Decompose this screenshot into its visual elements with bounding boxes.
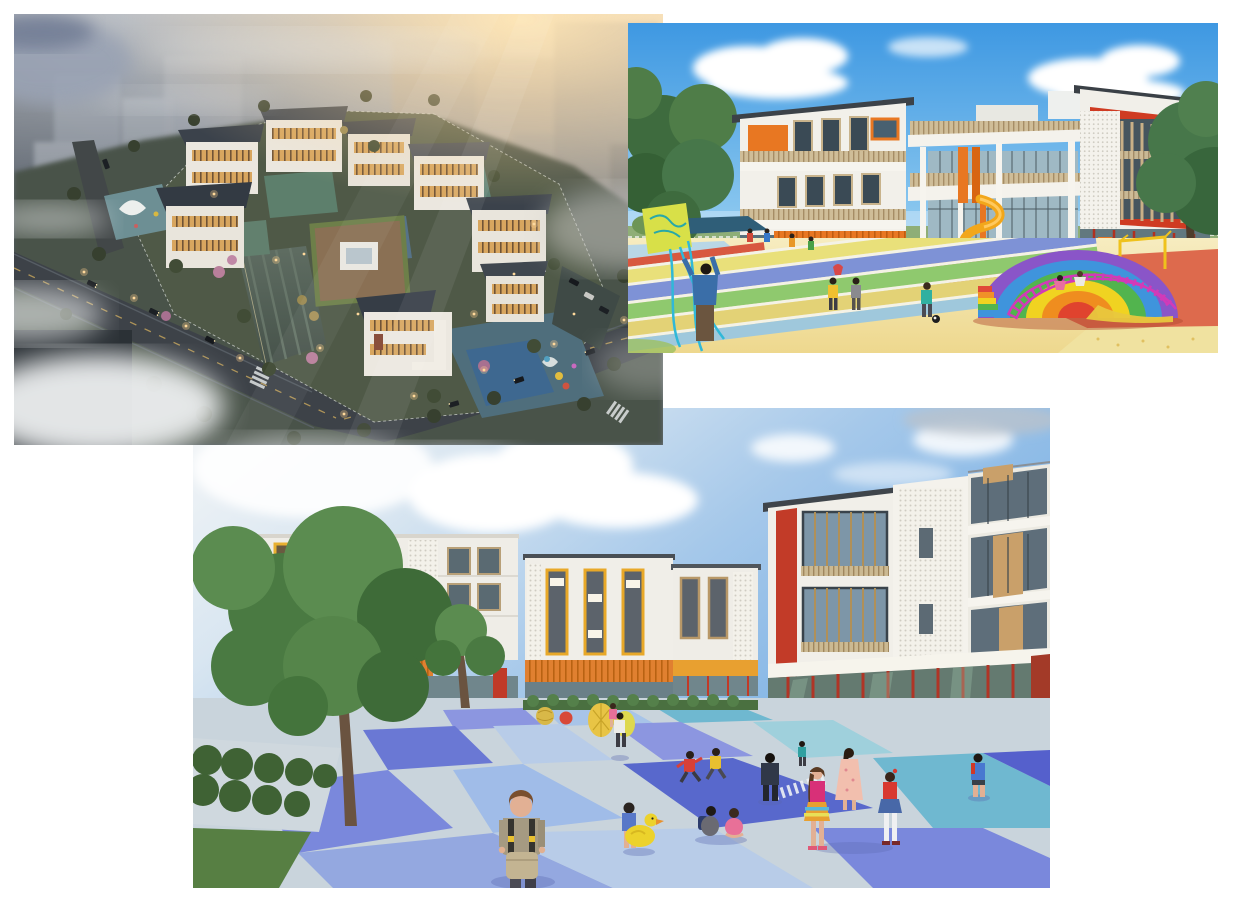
playground-elevation-rendering (628, 23, 1218, 353)
window-row-upper (801, 512, 889, 576)
middle-building (671, 564, 761, 696)
aerial-dusk-rendering (14, 14, 663, 445)
center-background-building (523, 554, 675, 700)
teal-kid (798, 741, 806, 766)
courtyard-plaza-rendering (193, 408, 1050, 888)
window-row-lower (801, 588, 889, 652)
collage-page (0, 0, 1248, 904)
